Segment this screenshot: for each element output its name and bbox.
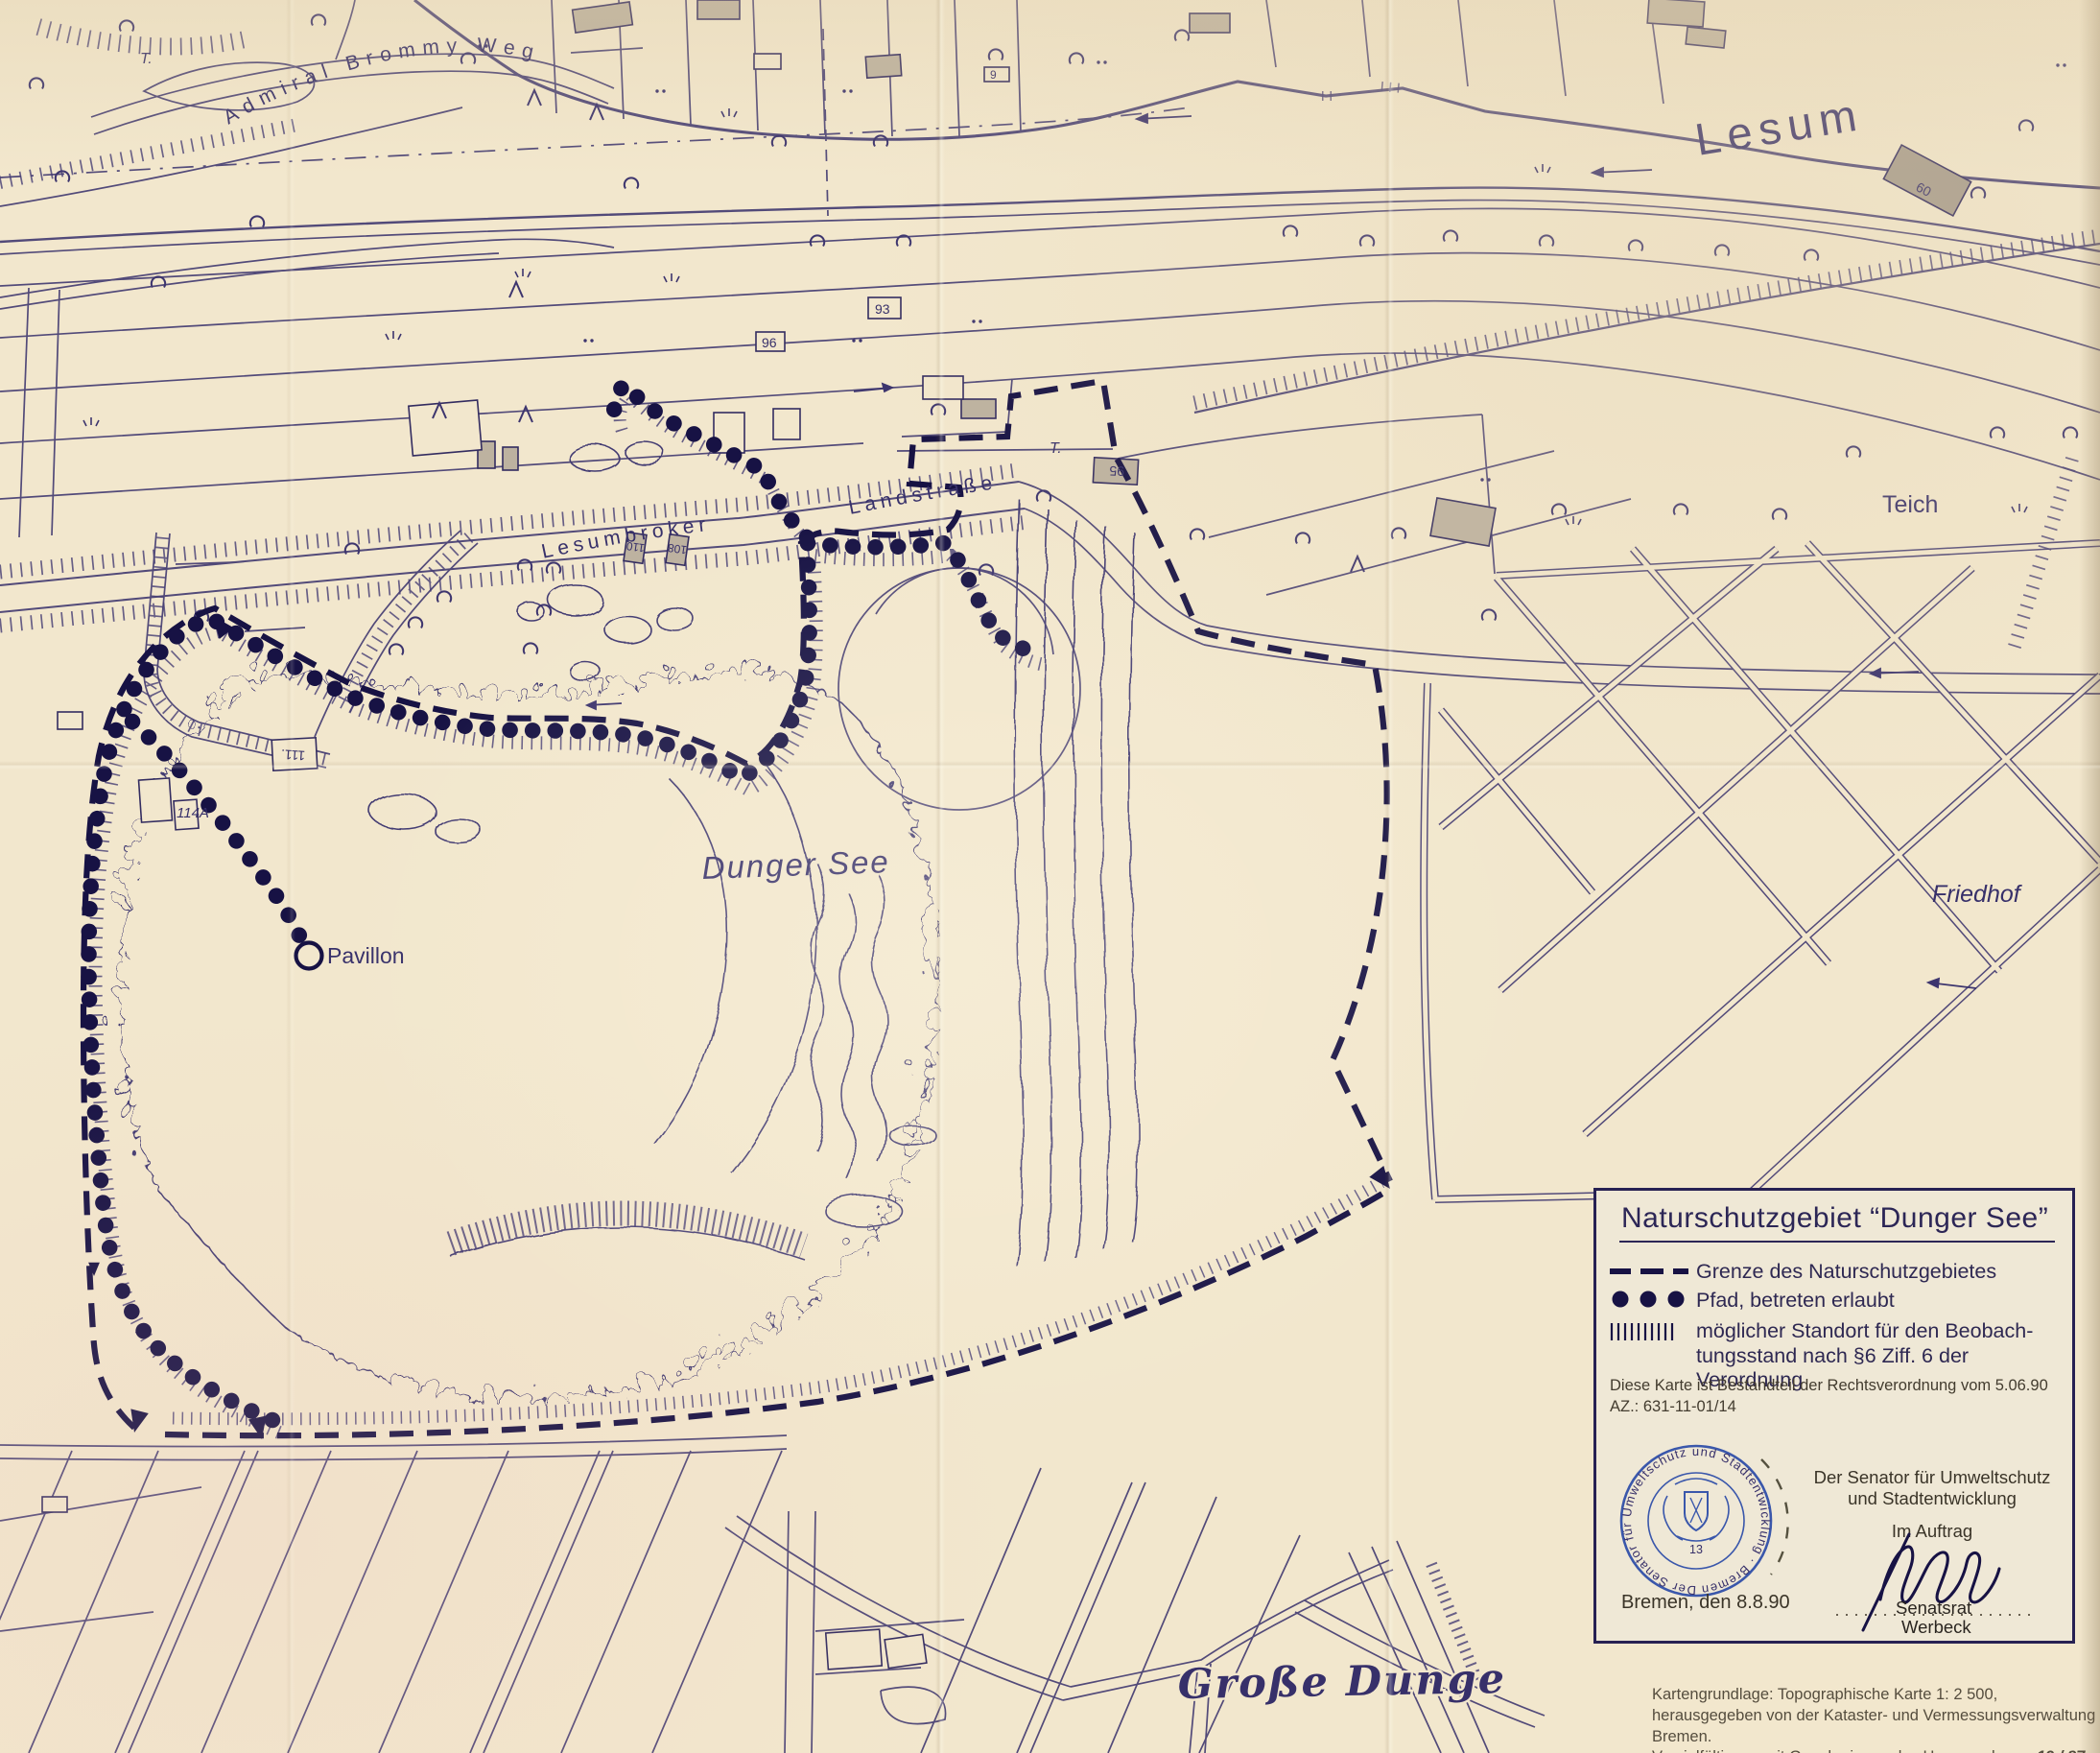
legend-panel: Naturschutzgebiet “Dunger See” Grenze de… [1593,1188,2075,1644]
dunger-see-water [108,442,1138,1386]
legend-label-path: Pfad, betreten erlaubt [1696,1289,1895,1313]
street-north-label: Admiral Brommy Weg [220,35,543,129]
t-mark-1: T. [140,51,153,67]
signer-title: Senatsrat [1896,1598,1971,1619]
stamp-number: 13 [1689,1543,1703,1556]
map-sheet: Lesum Dunger See Teich Friedhof Große Du… [0,0,2100,1753]
legend-label-boundary: Grenze des Naturschutzgebietes [1696,1260,1996,1284]
legend-symbol-stand [1608,1321,1692,1347]
lake-label: Dunger See [701,843,890,886]
legend-note-line1: Diese Karte ist Bestandteil der Rechtsve… [1610,1377,2048,1395]
house-number-108: 108 [667,541,688,557]
house-number-95: 95 [1109,463,1124,480]
street-main-right-textpath: Landstraße [847,471,999,519]
issuer-line1: Der Senator für Umweltschutz [1793,1467,2071,1488]
legend-symbol-path [1608,1289,1692,1315]
legend-symbol-boundary [1608,1262,1692,1286]
house-number-114a: 114A [177,805,209,821]
footer-line3-ref: 19 / 87 [2037,1748,2085,1753]
issuer-line2: und Stadtentwicklung [1793,1488,2071,1509]
footer-line3-prefix: Vervielfältigung mit Genehmigung des Her… [1652,1748,2037,1753]
street-main-right-label: Landstraße [847,471,999,519]
house-number-110: 110 [625,539,646,556]
stamp-coat-of-arms [1663,1479,1729,1541]
legend-label-stand-line1: möglicher Standort für den Beobach- [1696,1319,2033,1343]
cemetery-label: Friedhof [1932,881,2023,908]
place-date: Bremen, den 8.8.90 [1621,1592,1790,1614]
signer-name: Werbeck [1901,1617,1971,1638]
footer-line1: Kartengrundlage: Topographische Karte 1:… [1652,1685,2100,1706]
footer-line2: herausgegeben von der Kataster- und Verm… [1652,1706,2100,1748]
footer-line3: Vervielfältigung mit Genehmigung des Her… [1652,1747,2100,1753]
pond-label: Teich [1882,491,1938,518]
south-area-label: Große Dunge [1177,1655,1506,1709]
house-number-96: 96 [762,335,777,350]
footer-credits: Kartengrundlage: Topographische Karte 1:… [1652,1685,2100,1753]
street-north-textpath: Admiral Brommy Weg [220,35,543,129]
pavilion-label: Pavillon [327,943,405,968]
house-number-9: 9 [990,68,997,82]
legend-title: Naturschutzgebiet “Dunger See” [1621,1202,2048,1235]
legend-note-line2: AZ.: 631-11-01/14 [1610,1398,1736,1416]
legend-title-rule [1619,1241,2055,1243]
t-mark-2: T. [1050,440,1062,457]
house-number-111: 111. [280,746,305,764]
pavilion-symbol [296,943,322,969]
house-number-93: 93 [875,301,890,317]
